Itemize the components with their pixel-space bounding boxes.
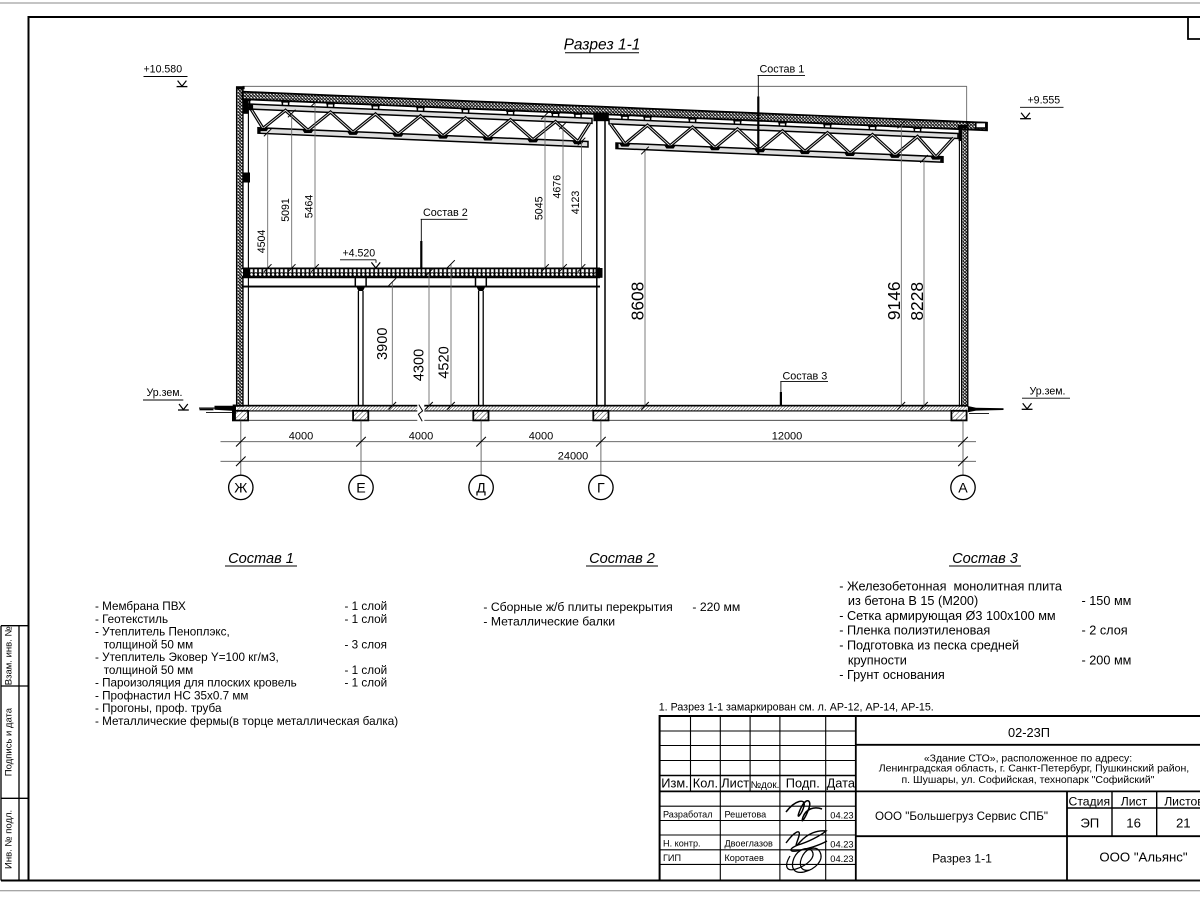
svg-text:5045: 5045 (533, 196, 545, 220)
svg-text:Инв. № подл.: Инв. № подл. (4, 810, 15, 869)
svg-text:4300: 4300 (412, 349, 428, 381)
svg-text:- Металлические фермы(в торце: - Металлические фермы(в торце металличес… (95, 715, 398, 728)
svg-text:5464: 5464 (304, 195, 316, 219)
svg-text:- 200 мм: - 200 мм (1082, 653, 1132, 667)
svg-text:Кол.: Кол. (693, 775, 718, 790)
svg-text:Н. контр.: Н. контр. (663, 839, 701, 849)
svg-text:Разрез 1-1: Разрез 1-1 (932, 852, 992, 866)
svg-text:12000: 12000 (772, 431, 803, 443)
svg-text:Подп.: Подп. (786, 775, 820, 790)
svg-text:24000: 24000 (558, 450, 589, 462)
svg-text:ООО "Большегруз Сервис СПБ": ООО "Большегруз Сервис СПБ" (875, 810, 1048, 823)
svg-text:- 2 слоя: - 2 слоя (1082, 624, 1128, 638)
svg-text:№док.: №док. (751, 780, 780, 791)
svg-text:3900: 3900 (375, 328, 391, 360)
svg-text:04.23: 04.23 (830, 810, 853, 820)
svg-text:ГИП: ГИП (663, 853, 681, 863)
svg-text:- 1 слой: - 1 слой (345, 677, 388, 690)
svg-text:- Сборные ж/б плиты перекрытия: - Сборные ж/б плиты перекрытия (483, 600, 672, 614)
svg-text:- Профнастил НС 35х0.7 мм: - Профнастил НС 35х0.7 мм (95, 689, 248, 702)
svg-text:- 1 слой: - 1 слой (345, 664, 388, 677)
svg-text:ЭП: ЭП (1080, 816, 1099, 831)
svg-text:Коротаев: Коротаев (725, 853, 764, 863)
svg-text:- Подготовка из песка средней: - Подготовка из песка средней (839, 639, 1019, 653)
svg-text:- Пароизоляция для плоских кро: - Пароизоляция для плоских кровель (95, 677, 297, 690)
svg-text:4000: 4000 (289, 431, 313, 443)
svg-text:4123: 4123 (570, 191, 582, 215)
svg-text:- Прогоны, проф. труба: - Прогоны, проф. труба (95, 702, 222, 715)
svg-text:- Металлические балки: - Металлические балки (483, 615, 615, 629)
svg-text:21: 21 (1176, 816, 1191, 831)
svg-text:Состав 3: Состав 3 (783, 371, 828, 383)
svg-text:крупности: крупности (848, 653, 907, 667)
svg-text:Лист: Лист (721, 775, 749, 790)
svg-text:Состав 2: Состав 2 (589, 551, 655, 567)
svg-text:толщиной 50 мм: толщиной 50 мм (104, 638, 193, 651)
svg-text:4676: 4676 (551, 175, 563, 199)
svg-text:Е: Е (356, 480, 365, 496)
svg-text:04.23: 04.23 (830, 840, 853, 850)
svg-text:04.23: 04.23 (830, 854, 853, 864)
svg-text:Разработал: Разработал (663, 809, 713, 819)
svg-text:Листов: Листов (1164, 794, 1200, 808)
svg-text:- Пленка полиэтиленовая: - Пленка полиэтиленовая (839, 624, 990, 638)
svg-text:Состав 2: Состав 2 (423, 207, 468, 219)
svg-text:02-23П: 02-23П (1008, 725, 1050, 740)
svg-text:9146: 9146 (884, 281, 904, 320)
svg-text:- 1 слой: - 1 слой (345, 600, 388, 613)
svg-text:из бетона В 15 (М200): из бетона В 15 (М200) (848, 594, 978, 608)
svg-text:+10.580: +10.580 (144, 63, 183, 75)
svg-text:- 220 мм: - 220 мм (692, 600, 740, 614)
svg-text:- Геотекстиль: - Геотекстиль (95, 613, 168, 626)
svg-text:Решетова: Решетова (725, 809, 768, 819)
svg-text:Состав 1: Состав 1 (760, 64, 805, 76)
svg-text:- Сетка армирующая Ø3 100х100: - Сетка армирующая Ø3 100х100 мм (839, 609, 1055, 623)
svg-text:Состав 1: Состав 1 (228, 551, 294, 567)
svg-text:п. Шушары, ул. Софийская, техн: п. Шушары, ул. Софийская, технопарк "Соф… (902, 774, 1155, 786)
svg-text:Двоеглазов: Двоеглазов (725, 839, 774, 849)
svg-text:1. Разрез 1-1 замаркирован см.: 1. Разрез 1-1 замаркирован см. л. АР-12,… (659, 702, 934, 714)
svg-text:Лист: Лист (1121, 794, 1148, 808)
svg-text:Разрез 1-1: Разрез 1-1 (564, 37, 641, 54)
svg-text:Ур.зем.: Ур.зем. (1030, 385, 1066, 397)
svg-text:А: А (958, 480, 968, 496)
svg-text:Взам. инв. №: Взам. инв. № (4, 626, 15, 685)
svg-text:- 3 слоя: - 3 слоя (345, 638, 388, 651)
svg-text:Стадия: Стадия (1069, 794, 1111, 808)
svg-text:- Мембрана ПВХ: - Мембрана ПВХ (95, 600, 186, 613)
svg-text:ООО "Альянс": ООО "Альянс" (1099, 849, 1187, 864)
svg-text:Д: Д (476, 480, 486, 496)
svg-text:- 150 мм: - 150 мм (1082, 594, 1132, 608)
svg-text:Дата: Дата (827, 775, 856, 790)
svg-text:4000: 4000 (409, 431, 433, 443)
svg-text:16: 16 (1126, 816, 1141, 831)
svg-text:Ур.зем.: Ур.зем. (147, 387, 183, 399)
svg-text:Подпись и дата: Подпись и дата (4, 707, 15, 776)
svg-text:4520: 4520 (437, 346, 453, 378)
svg-text:Ж: Ж (234, 480, 247, 496)
svg-text:Изм.: Изм. (661, 775, 688, 790)
svg-text:+9.555: +9.555 (1028, 94, 1061, 106)
svg-text:Ленинградская область, г. Санк: Ленинградская область, г. Санкт-Петербур… (879, 762, 1189, 774)
svg-text:4000: 4000 (529, 431, 553, 443)
svg-text:толщиной 50 мм: толщиной 50 мм (104, 664, 193, 677)
svg-text:- Утеплитель Эковер Y=100 кг/м: - Утеплитель Эковер Y=100 кг/м3, (95, 651, 279, 664)
svg-text:- Грунт основания: - Грунт основания (839, 668, 945, 682)
svg-text:Г: Г (597, 480, 605, 496)
svg-text:+4.520: +4.520 (343, 248, 376, 260)
svg-text:8608: 8608 (627, 282, 647, 321)
svg-text:- 1 слой: - 1 слой (345, 613, 388, 626)
svg-text:4504: 4504 (256, 230, 268, 254)
svg-text:5091: 5091 (280, 198, 292, 222)
svg-text:8228: 8228 (907, 282, 927, 321)
svg-text:Состав 3: Состав 3 (952, 551, 1018, 567)
svg-text:- Железобетонная монолитная п: - Железобетонная монолитная плита (839, 579, 1063, 593)
svg-text:- Утеплитель Пеноплэкс,: - Утеплитель Пеноплэкс, (95, 626, 230, 639)
